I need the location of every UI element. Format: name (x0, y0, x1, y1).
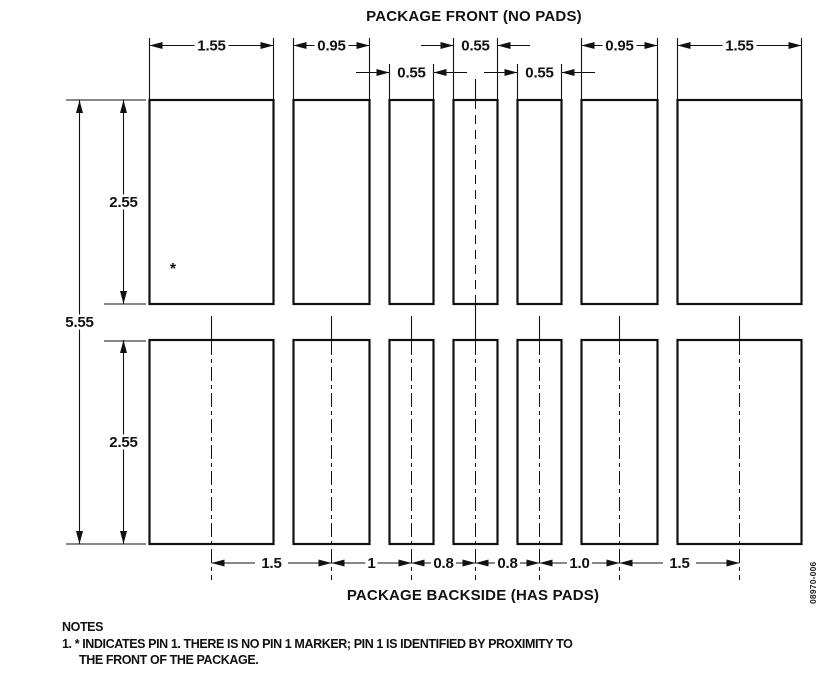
dim-label-pitch-2: 1 (367, 555, 375, 572)
dim-label-width-col7: 1.55 (725, 38, 753, 55)
dim-label-pitch-3: 0.8 (433, 555, 453, 572)
dim-label-pitch-1: 1.5 (261, 555, 281, 572)
dim-label-width-col2: 0.95 (317, 38, 345, 55)
dim-label-pitch-4: 0.8 (497, 555, 517, 572)
dim-label-width-col3: 0.55 (397, 65, 425, 82)
package-dimension-drawing: PACKAGE FRONT (NO PADS) (0, 0, 827, 674)
title-package-front: PACKAGE FRONT (NO PADS) (366, 8, 582, 25)
notes-line-1: 1. * INDICATES PIN 1. THERE IS NO PIN 1 … (62, 637, 573, 651)
diagram-canvas: PACKAGE FRONT (NO PADS) (0, 0, 827, 674)
figure-number: 08970-006 (808, 561, 818, 604)
dim-label-pitch-5: 1.0 (569, 555, 589, 572)
dim-label-width-col4: 0.55 (461, 38, 489, 55)
dim-label-width-col5: 0.55 (525, 65, 553, 82)
pin1-asterisk-marker: * (170, 261, 177, 278)
notes-line-2: THE FRONT OF THE PACKAGE. (79, 653, 258, 667)
dim-label-height-lower: 2.55 (109, 434, 137, 451)
dim-label-width-col6: 0.95 (605, 38, 633, 55)
title-package-backside: PACKAGE BACKSIDE (HAS PADS) (347, 587, 599, 604)
dim-label-pitch-6: 1.5 (669, 555, 689, 572)
notes-heading: NOTES (62, 620, 103, 634)
dim-label-height-overall: 5.55 (65, 314, 93, 331)
dim-label-height-upper: 2.55 (109, 194, 137, 211)
dim-label-width-col1: 1.55 (197, 38, 225, 55)
